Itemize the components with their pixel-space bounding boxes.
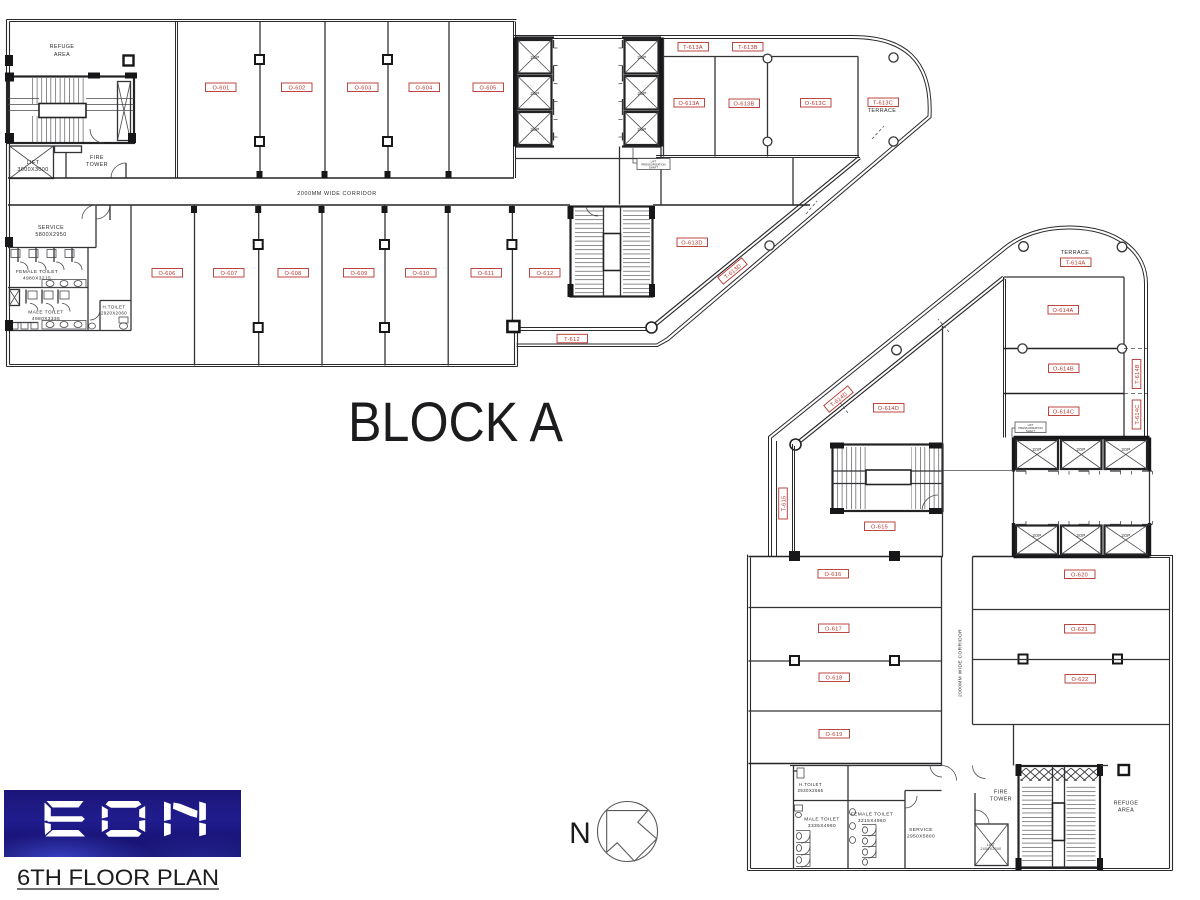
svg-text:BLOCK A: BLOCK A [348, 390, 564, 453]
svg-text:O-603: O-603 [354, 86, 371, 92]
svg-text:O-622: O-622 [1071, 677, 1088, 683]
svg-text:LIFT: LIFT [27, 160, 40, 166]
svg-text:2920X2060: 2920X2060 [101, 311, 127, 316]
svg-text:TERRACE: TERRACE [1061, 250, 1090, 256]
svg-text:O-602: O-602 [288, 86, 305, 92]
svg-text:O-615: O-615 [871, 525, 888, 531]
svg-text:O-617: O-617 [825, 627, 842, 633]
svg-text:2000MM WIDE CORRIDOR: 2000MM WIDE CORRIDOR [958, 629, 964, 697]
svg-text:T-614B: T-614B [1135, 364, 1141, 384]
svg-text:O-619: O-619 [825, 732, 842, 738]
svg-text:O-604: O-604 [415, 86, 432, 92]
svg-text:25P: 25P [637, 55, 646, 60]
svg-text:25P: 25P [530, 91, 539, 96]
svg-text:20P: 20P [1121, 533, 1130, 538]
svg-text:O-614A: O-614A [1052, 308, 1073, 314]
svg-text:SERVICE: SERVICE [909, 827, 933, 833]
svg-text:O-609: O-609 [350, 271, 367, 277]
svg-text:4980X3215: 4980X3215 [23, 276, 51, 282]
svg-text:O-608: O-608 [284, 271, 301, 277]
svg-text:2950X5800: 2950X5800 [907, 834, 935, 840]
svg-text:MALE TOILET: MALE TOILET [804, 817, 839, 823]
svg-text:TERRACE: TERRACE [868, 108, 897, 114]
svg-text:FEMALE TOILET: FEMALE TOILET [851, 812, 893, 818]
svg-text:O-621: O-621 [1071, 627, 1088, 633]
svg-text:O-614D: O-614D [878, 406, 899, 412]
svg-text:6TH FLOOR PLAN: 6TH FLOOR PLAN [17, 865, 219, 890]
svg-text:O-612: O-612 [536, 271, 553, 277]
svg-text:5800X2950: 5800X2950 [35, 232, 66, 238]
svg-text:2400X2300: 2400X2300 [981, 847, 1002, 851]
svg-text:T-614A: T-614A [1066, 261, 1086, 267]
svg-text:T-613B: T-613B [738, 45, 758, 51]
svg-text:T-613A: T-613A [683, 45, 703, 51]
svg-text:AREA: AREA [54, 52, 70, 58]
svg-text:2000MM WIDE CORRIDOR: 2000MM WIDE CORRIDOR [297, 191, 376, 197]
svg-text:2930X2665: 2930X2665 [797, 788, 823, 793]
svg-text:O-613A: O-613A [678, 101, 699, 107]
svg-text:SHAFT: SHAFT [649, 166, 658, 170]
svg-text:N: N [569, 817, 591, 850]
svg-text:20P: 20P [1076, 447, 1085, 452]
svg-text:SHAFT: SHAFT [1026, 429, 1035, 433]
svg-text:3000X3000: 3000X3000 [17, 167, 48, 173]
svg-text:O-613B: O-613B [733, 102, 754, 108]
svg-text:REFUGE: REFUGE [50, 44, 75, 50]
svg-text:AREA: AREA [1118, 808, 1134, 814]
svg-text:T-614C: T-614C [1135, 404, 1141, 424]
svg-text:3215X4960: 3215X4960 [858, 818, 886, 824]
svg-text:O-607: O-607 [220, 271, 237, 277]
svg-text:3335X4960: 3335X4960 [808, 823, 836, 829]
svg-text:4980X3336: 4980X3336 [32, 316, 60, 322]
svg-text:SERVICE: SERVICE [38, 225, 64, 231]
svg-text:25P: 25P [637, 91, 646, 96]
svg-text:20P: 20P [1076, 533, 1085, 538]
svg-text:O-611: O-611 [478, 271, 495, 277]
svg-text:FIRE: FIRE [90, 155, 104, 161]
svg-text:25P: 25P [530, 127, 539, 132]
svg-text:FEMALE TOILET: FEMALE TOILET [16, 269, 58, 275]
svg-text:O-618: O-618 [825, 676, 842, 682]
svg-text:25P: 25P [530, 55, 539, 60]
svg-text:REFUGE: REFUGE [1114, 801, 1139, 807]
svg-text:O-606: O-606 [158, 271, 175, 277]
svg-text:MALE TOILET: MALE TOILET [28, 310, 63, 316]
svg-text:20P: 20P [1032, 447, 1041, 452]
svg-text:TOWER: TOWER [990, 797, 1012, 803]
svg-text:20P: 20P [1032, 533, 1041, 538]
svg-text:H.TOILET: H.TOILET [799, 782, 822, 787]
svg-text:T-613C: T-613C [873, 101, 893, 107]
svg-text:O-614C: O-614C [1053, 410, 1074, 416]
svg-text:O-613C: O-613C [805, 101, 826, 107]
svg-text:O-613D: O-613D [681, 241, 702, 247]
svg-text:O-605: O-605 [479, 86, 496, 92]
svg-text:O-620: O-620 [1071, 573, 1088, 579]
svg-text:25P: 25P [637, 127, 646, 132]
svg-text:T-615: T-615 [781, 496, 787, 512]
svg-text:20P: 20P [1121, 447, 1130, 452]
svg-text:O-610: O-610 [412, 271, 429, 277]
svg-text:TOWER: TOWER [86, 162, 108, 168]
svg-text:O-616: O-616 [824, 572, 841, 578]
svg-text:H.TOILET: H.TOILET [103, 305, 126, 310]
svg-text:O-601: O-601 [212, 86, 229, 92]
svg-text:O-614B: O-614B [1053, 367, 1074, 373]
svg-text:FIRE: FIRE [994, 790, 1008, 796]
svg-text:T-612: T-612 [564, 337, 580, 343]
